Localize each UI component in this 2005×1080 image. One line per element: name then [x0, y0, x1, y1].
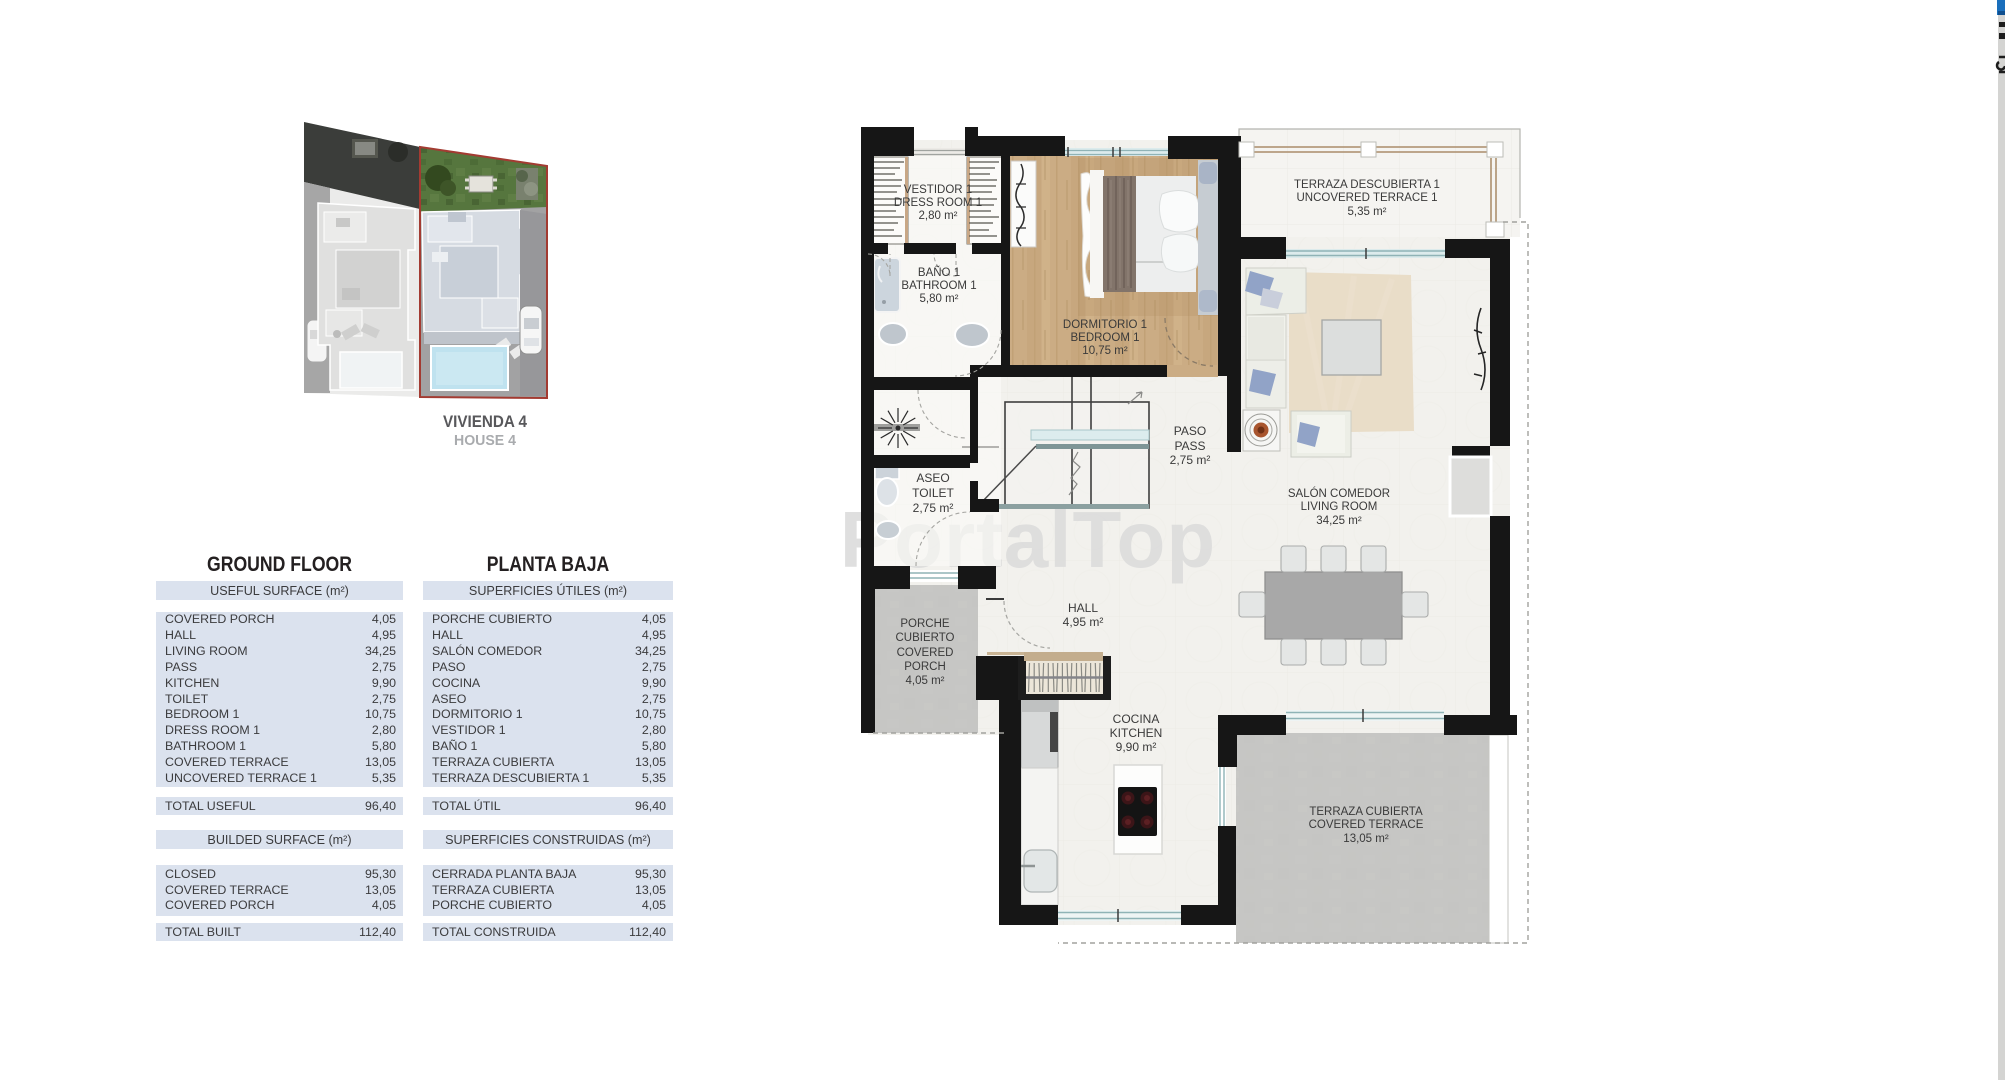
svg-text:2,80 m²: 2,80 m² [919, 210, 958, 222]
svg-text:BAÑO 1: BAÑO 1 [918, 266, 960, 279]
svg-text:COVERED: COVERED [897, 647, 954, 659]
svg-text:4,05 m²: 4,05 m² [906, 675, 945, 687]
svg-text:HOUSE 4: HOUSE 4 [454, 433, 516, 449]
svg-text:VIVIENDA 4: VIVIENDA 4 [443, 413, 528, 431]
svg-text:13,05 m²: 13,05 m² [1343, 833, 1389, 845]
svg-text:BATHROOM 1: BATHROOM 1 [901, 280, 976, 292]
svg-text:COVERED TERRACE: COVERED TERRACE [1309, 819, 1424, 831]
svg-text:2,75 m²: 2,75 m² [1170, 453, 1211, 467]
svg-text:VESTIDOR 1: VESTIDOR 1 [904, 184, 972, 196]
svg-text:PORCHE: PORCHE [900, 618, 950, 630]
svg-text:ASEO: ASEO [916, 471, 949, 485]
svg-text:CUBIERTO: CUBIERTO [895, 632, 954, 644]
svg-text:5,80 m²: 5,80 m² [920, 293, 959, 305]
svg-text:PASO: PASO [1174, 424, 1206, 438]
svg-text:SALÓN COMEDOR: SALÓN COMEDOR [1288, 487, 1390, 500]
svg-text:34,25 m²: 34,25 m² [1316, 515, 1362, 527]
svg-text:UNCOVERED TERRACE 1: UNCOVERED TERRACE 1 [1296, 192, 1437, 204]
svg-text:LIVING ROOM: LIVING ROOM [1301, 501, 1378, 513]
svg-text:PORCH: PORCH [904, 661, 946, 673]
svg-text:5,35 m²: 5,35 m² [1348, 206, 1387, 218]
svg-text:TERRAZA DESCUBIERTA 1: TERRAZA DESCUBIERTA 1 [1294, 179, 1440, 191]
svg-text:10,75 m²: 10,75 m² [1082, 345, 1128, 357]
svg-text:HALL: HALL [1068, 601, 1098, 615]
svg-text:2,75 m²: 2,75 m² [913, 501, 954, 515]
svg-text:4,95 m²: 4,95 m² [1063, 615, 1104, 629]
svg-text:PASS: PASS [1174, 439, 1205, 453]
svg-text:9,90 m²: 9,90 m² [1116, 740, 1157, 754]
svg-text:DRESS ROOM 1: DRESS ROOM 1 [894, 197, 982, 209]
svg-text:TOILET: TOILET [912, 486, 954, 500]
svg-text:TERRAZA CUBIERTA: TERRAZA CUBIERTA [1309, 806, 1423, 818]
svg-text:BEDROOM 1: BEDROOM 1 [1070, 332, 1139, 344]
svg-text:KITCHEN: KITCHEN [1110, 726, 1163, 740]
svg-text:DORMITORIO 1: DORMITORIO 1 [1063, 319, 1147, 331]
svg-text:COCINA: COCINA [1113, 712, 1160, 726]
